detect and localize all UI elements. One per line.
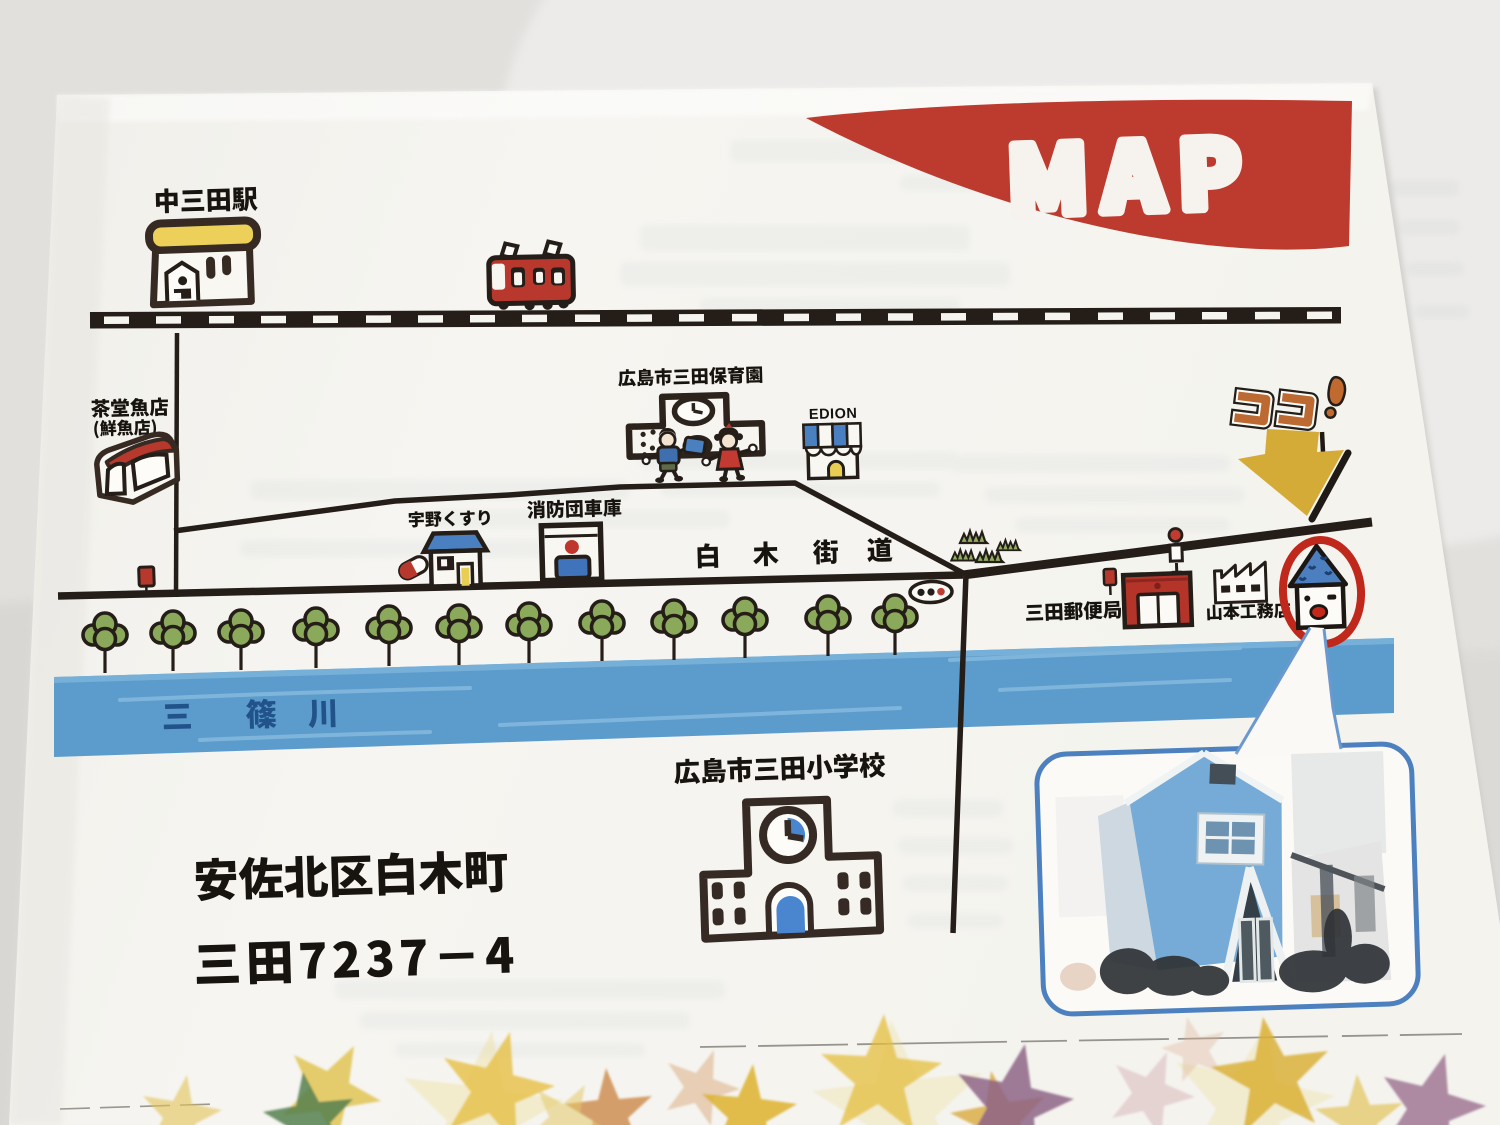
svg-text:EDION: EDION: [809, 406, 858, 423]
